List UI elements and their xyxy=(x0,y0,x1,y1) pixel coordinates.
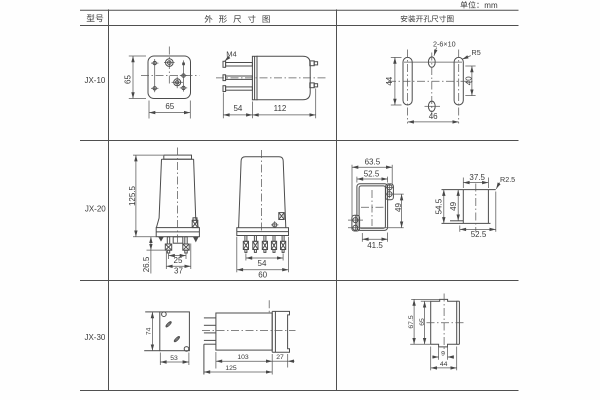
svg-text:103: 103 xyxy=(237,354,249,361)
svg-text:63.5: 63.5 xyxy=(365,157,381,166)
svg-text:65: 65 xyxy=(419,318,426,326)
svg-text:37.5: 37.5 xyxy=(469,173,485,182)
svg-text:R2.5: R2.5 xyxy=(500,175,515,184)
svg-text:41.5: 41.5 xyxy=(367,241,383,250)
svg-text:JX-20: JX-20 xyxy=(85,204,106,213)
svg-text:27: 27 xyxy=(276,354,284,361)
svg-text:125.5: 125.5 xyxy=(128,185,137,206)
svg-text:54: 54 xyxy=(258,259,267,268)
svg-text:53: 53 xyxy=(170,355,178,362)
svg-text:49: 49 xyxy=(449,201,458,210)
svg-text:52.5: 52.5 xyxy=(471,230,487,239)
svg-text:44: 44 xyxy=(385,76,394,85)
svg-text:26.5: 26.5 xyxy=(142,256,151,272)
svg-text:52.5: 52.5 xyxy=(364,170,380,179)
svg-text:40: 40 xyxy=(465,76,474,85)
svg-text:74: 74 xyxy=(146,327,153,335)
svg-text:49: 49 xyxy=(394,203,403,212)
svg-text:44: 44 xyxy=(440,361,448,368)
svg-text:60: 60 xyxy=(258,270,267,279)
svg-text:54: 54 xyxy=(233,104,242,113)
svg-text:mm: mm xyxy=(484,1,498,10)
svg-text:JX-30: JX-30 xyxy=(84,333,105,342)
svg-text:125: 125 xyxy=(225,365,237,372)
svg-text:65: 65 xyxy=(123,75,132,84)
svg-text:R5: R5 xyxy=(472,48,481,57)
svg-text:37: 37 xyxy=(174,267,183,276)
svg-text:54.5: 54.5 xyxy=(435,198,444,214)
svg-text:9: 9 xyxy=(441,350,445,357)
svg-text:67.5: 67.5 xyxy=(408,315,415,328)
svg-text:112: 112 xyxy=(274,104,287,113)
svg-text:JX-10: JX-10 xyxy=(84,76,105,85)
svg-text:46: 46 xyxy=(429,112,438,121)
svg-text:2-6×10: 2-6×10 xyxy=(433,39,456,48)
svg-text:25: 25 xyxy=(174,256,183,265)
svg-text:M4: M4 xyxy=(226,49,236,58)
svg-text:65: 65 xyxy=(165,102,174,111)
